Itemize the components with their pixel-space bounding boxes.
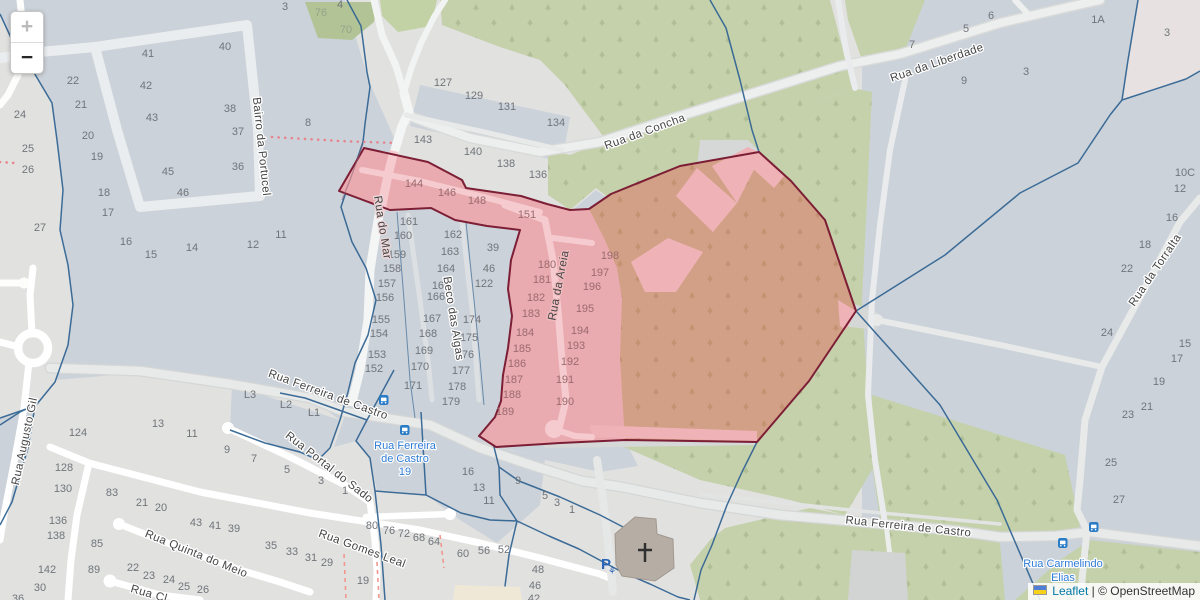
svg-text:138: 138 [47, 530, 65, 542]
svg-text:16: 16 [1166, 212, 1178, 224]
svg-text:12: 12 [247, 239, 259, 251]
svg-text:45: 45 [162, 166, 174, 178]
svg-text:9: 9 [515, 475, 521, 487]
svg-text:144: 144 [405, 178, 423, 190]
svg-text:128: 128 [55, 462, 73, 474]
svg-text:42: 42 [528, 593, 540, 600]
svg-text:154: 154 [370, 328, 388, 340]
svg-text:18: 18 [98, 187, 110, 199]
svg-text:9: 9 [961, 75, 967, 87]
svg-text:42: 42 [140, 80, 152, 92]
svg-text:162: 162 [444, 229, 462, 241]
svg-text:68: 68 [413, 532, 425, 544]
svg-text:5: 5 [284, 464, 290, 476]
svg-text:39: 39 [228, 523, 240, 535]
svg-text:17: 17 [102, 207, 114, 219]
svg-text:136: 136 [529, 169, 547, 181]
svg-text:122: 122 [475, 278, 493, 290]
svg-text:167: 167 [423, 313, 441, 325]
svg-text:1: 1 [569, 504, 575, 516]
svg-text:11: 11 [483, 495, 494, 507]
svg-text:40: 40 [219, 41, 231, 53]
svg-text:186: 186 [508, 358, 526, 370]
svg-text:7: 7 [909, 39, 915, 51]
svg-text:196: 196 [583, 281, 601, 293]
svg-text:134: 134 [547, 117, 565, 129]
svg-text:26: 26 [22, 164, 34, 176]
svg-text:41: 41 [142, 48, 154, 60]
svg-text:9: 9 [224, 444, 230, 456]
svg-text:184: 184 [516, 327, 534, 339]
svg-text:146: 146 [438, 187, 456, 199]
svg-text:129: 129 [465, 90, 483, 102]
svg-text:143: 143 [414, 134, 432, 146]
svg-text:183: 183 [522, 308, 540, 320]
svg-text:46: 46 [177, 187, 189, 199]
svg-text:3: 3 [1164, 27, 1170, 39]
svg-text:3: 3 [554, 497, 560, 509]
svg-text:1A: 1A [1091, 14, 1105, 26]
svg-text:130: 130 [54, 483, 72, 495]
svg-text:35: 35 [265, 540, 277, 552]
svg-text:17: 17 [1171, 353, 1183, 365]
svg-text:76: 76 [383, 525, 395, 537]
svg-text:188: 188 [503, 389, 521, 401]
svg-text:5: 5 [963, 23, 969, 35]
svg-text:198: 198 [601, 250, 619, 262]
svg-text:21: 21 [75, 99, 87, 111]
svg-text:24: 24 [1101, 327, 1113, 339]
svg-text:16: 16 [120, 236, 132, 248]
svg-text:178: 178 [448, 381, 466, 393]
svg-text:197: 197 [591, 267, 609, 279]
svg-text:192: 192 [561, 356, 579, 368]
svg-text:36: 36 [12, 593, 24, 600]
svg-text:22: 22 [127, 562, 139, 574]
svg-text:151: 151 [518, 209, 536, 221]
svg-text:16: 16 [462, 466, 474, 478]
svg-text:20: 20 [155, 502, 167, 514]
svg-text:136: 136 [49, 515, 67, 527]
svg-text:36: 36 [232, 161, 244, 173]
svg-text:8: 8 [305, 117, 311, 129]
svg-text:148: 148 [468, 195, 486, 207]
svg-text:Rua Carmelindo: Rua Carmelindo [1023, 558, 1102, 570]
svg-text:46: 46 [529, 580, 541, 592]
svg-text:13: 13 [152, 418, 164, 430]
svg-text:76: 76 [315, 7, 327, 19]
svg-text:193: 193 [567, 340, 585, 352]
svg-text:156: 156 [376, 292, 394, 304]
svg-text:52: 52 [498, 544, 510, 556]
svg-text:161: 161 [400, 216, 418, 228]
svg-text:180: 180 [538, 259, 556, 271]
svg-text:189: 189 [496, 406, 514, 418]
svg-text:13: 13 [473, 482, 485, 494]
svg-text:70: 70 [340, 24, 352, 36]
svg-text:Rua Ferreira: Rua Ferreira [374, 440, 437, 452]
svg-text:5: 5 [542, 490, 548, 502]
svg-text:56: 56 [478, 545, 490, 557]
svg-text:27: 27 [1113, 494, 1125, 506]
svg-text:191: 191 [556, 374, 574, 386]
svg-text:194: 194 [571, 325, 589, 337]
svg-text:164: 164 [437, 263, 455, 275]
svg-text:64: 64 [428, 536, 440, 548]
svg-text:27: 27 [34, 222, 46, 234]
svg-text:33: 33 [286, 546, 298, 558]
svg-text:168: 168 [419, 328, 437, 340]
svg-text:152: 152 [365, 363, 383, 375]
svg-text:131: 131 [498, 101, 516, 113]
svg-text:15: 15 [145, 249, 157, 261]
svg-text:11: 11 [186, 428, 197, 440]
svg-text:23: 23 [1122, 409, 1134, 421]
svg-text:30: 30 [34, 582, 46, 594]
svg-text:181: 181 [533, 274, 551, 286]
svg-text:3: 3 [318, 475, 324, 487]
svg-text:163: 163 [441, 246, 459, 258]
svg-text:19: 19 [1153, 376, 1165, 388]
svg-text:21: 21 [136, 497, 148, 509]
svg-text:6: 6 [988, 10, 994, 22]
svg-text:25: 25 [1105, 457, 1117, 469]
svg-text:187: 187 [505, 374, 523, 386]
svg-text:190: 190 [556, 396, 574, 408]
svg-text:155: 155 [372, 314, 390, 326]
svg-text:4: 4 [337, 0, 343, 11]
svg-text:170: 170 [411, 361, 429, 373]
svg-text:18: 18 [1139, 239, 1151, 251]
svg-text:29: 29 [321, 557, 333, 569]
svg-text:142: 142 [38, 564, 56, 576]
svg-text:185: 185 [513, 343, 531, 355]
svg-text:21: 21 [1141, 401, 1153, 413]
svg-text:171: 171 [404, 380, 422, 392]
svg-text:41: 41 [209, 520, 221, 532]
svg-text:39: 39 [487, 242, 499, 254]
svg-text:46: 46 [483, 263, 495, 275]
svg-text:11: 11 [275, 229, 286, 241]
svg-text:22: 22 [1121, 263, 1133, 275]
svg-text:157: 157 [378, 278, 396, 290]
svg-text:83: 83 [106, 487, 118, 499]
svg-text:15: 15 [1179, 338, 1191, 350]
svg-text:138: 138 [497, 158, 515, 170]
svg-text:3: 3 [1023, 66, 1029, 78]
svg-text:124: 124 [69, 427, 87, 439]
svg-text:24: 24 [163, 574, 175, 586]
svg-text:26: 26 [197, 584, 209, 596]
svg-text:174: 174 [463, 314, 481, 326]
svg-text:20: 20 [82, 130, 94, 142]
svg-text:de Castro: de Castro [381, 453, 429, 465]
svg-text:80: 80 [366, 520, 378, 532]
svg-text:31: 31 [305, 552, 317, 564]
svg-text:38: 38 [224, 103, 236, 115]
svg-text:19: 19 [91, 151, 103, 163]
svg-text:19: 19 [399, 466, 411, 478]
svg-text:158: 158 [383, 263, 401, 275]
svg-text:43: 43 [190, 517, 202, 529]
svg-text:14: 14 [186, 242, 198, 254]
svg-text:L1: L1 [308, 407, 320, 419]
svg-text:48: 48 [532, 564, 544, 576]
svg-text:166: 166 [427, 291, 445, 303]
svg-text:12: 12 [1174, 183, 1186, 195]
svg-text:72: 72 [398, 528, 410, 540]
svg-text:22: 22 [67, 75, 79, 87]
svg-text:L3: L3 [244, 389, 256, 401]
svg-text:127: 127 [434, 77, 452, 89]
svg-text:3: 3 [282, 1, 288, 13]
svg-text:24: 24 [14, 109, 26, 121]
svg-text:195: 195 [576, 303, 594, 315]
svg-text:25: 25 [178, 581, 190, 593]
svg-text:⚘: ⚘ [608, 566, 616, 576]
svg-text:60: 60 [457, 548, 469, 560]
svg-text:140: 140 [464, 146, 482, 158]
svg-text:37: 37 [232, 126, 244, 138]
svg-text:7: 7 [251, 453, 257, 465]
svg-text:19: 19 [357, 575, 369, 587]
svg-text:153: 153 [368, 349, 386, 361]
svg-text:89: 89 [88, 564, 100, 576]
svg-text:182: 182 [527, 292, 545, 304]
svg-text:L2: L2 [280, 399, 292, 411]
svg-text:85: 85 [91, 538, 103, 550]
svg-text:10C: 10C [1175, 167, 1195, 179]
svg-text:160: 160 [394, 230, 412, 242]
svg-text:169: 169 [415, 345, 433, 357]
svg-text:25: 25 [22, 143, 34, 155]
svg-text:179: 179 [442, 396, 460, 408]
svg-text:177: 177 [452, 365, 470, 377]
svg-text:43: 43 [146, 112, 158, 124]
svg-text:23: 23 [143, 570, 155, 582]
